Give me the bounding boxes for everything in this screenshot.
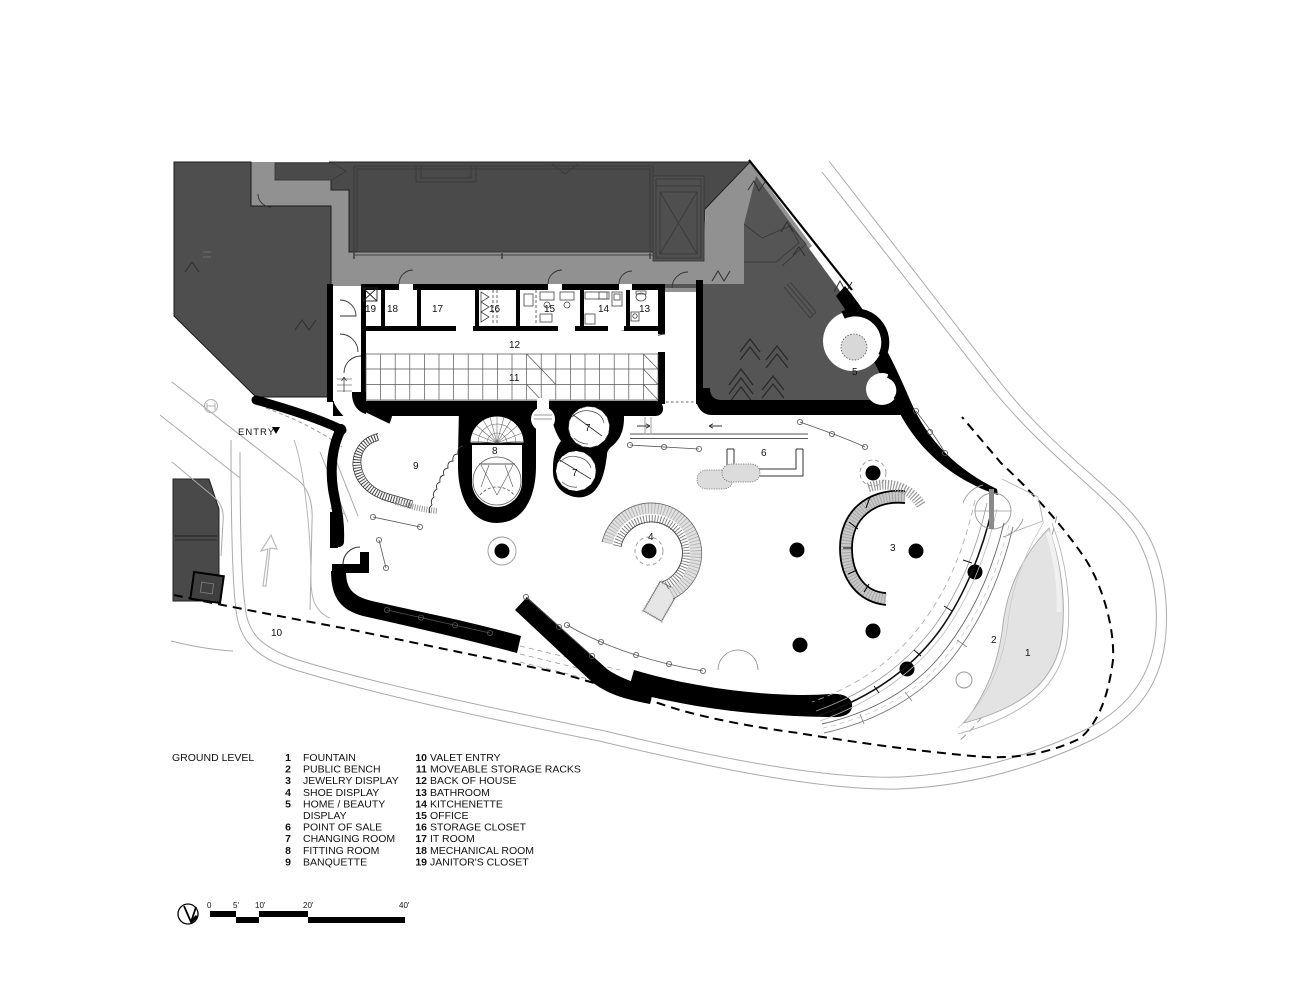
svg-text:OFFICE: OFFICE <box>430 810 469 822</box>
svg-text:4: 4 <box>648 532 654 543</box>
svg-text:13: 13 <box>415 787 427 799</box>
svg-text:19: 19 <box>415 856 427 868</box>
svg-text:17: 17 <box>415 833 427 845</box>
svg-text:VALET ENTRY: VALET ENTRY <box>430 752 501 764</box>
svg-text:19: 19 <box>365 304 377 315</box>
svg-text:8: 8 <box>492 446 498 457</box>
svg-text:12: 12 <box>415 775 427 787</box>
svg-text:JANITOR'S CLOSET: JANITOR'S CLOSET <box>430 856 529 868</box>
svg-text:15: 15 <box>544 304 556 315</box>
svg-text:FITTING ROOM: FITTING ROOM <box>303 845 379 857</box>
svg-text:17: 17 <box>432 304 444 315</box>
svg-text:FOUNTAIN: FOUNTAIN <box>303 752 356 764</box>
svg-text:10: 10 <box>415 752 427 764</box>
svg-text:5': 5' <box>233 901 239 910</box>
svg-text:2: 2 <box>285 764 291 776</box>
svg-text:13: 13 <box>639 304 651 315</box>
svg-text:KITCHENETTE: KITCHENETTE <box>430 798 503 810</box>
svg-text:SHOE DISPLAY: SHOE DISPLAY <box>303 787 379 799</box>
svg-text:10': 10' <box>255 901 266 910</box>
svg-text:5: 5 <box>285 798 291 810</box>
svg-text:20': 20' <box>303 901 314 910</box>
svg-text:15: 15 <box>415 810 427 822</box>
svg-text:16: 16 <box>489 304 501 315</box>
svg-text:9: 9 <box>285 856 291 868</box>
svg-text:10: 10 <box>271 628 283 639</box>
svg-text:CHANGING ROOM: CHANGING ROOM <box>303 833 395 845</box>
svg-text:POINT OF SALE: POINT OF SALE <box>303 822 382 834</box>
svg-text:18: 18 <box>415 845 427 857</box>
svg-text:9: 9 <box>413 461 419 472</box>
svg-text:16: 16 <box>415 822 427 834</box>
svg-text:BATHROOM: BATHROOM <box>430 787 490 799</box>
svg-text:40': 40' <box>399 901 410 910</box>
svg-text:14: 14 <box>415 798 427 810</box>
svg-text:4: 4 <box>285 787 291 799</box>
svg-text:JEWELRY DISPLAY: JEWELRY DISPLAY <box>303 775 399 787</box>
svg-text:MOVEABLE STORAGE RACKS: MOVEABLE STORAGE RACKS <box>430 764 581 776</box>
svg-text:7: 7 <box>285 833 291 845</box>
svg-text:1: 1 <box>1025 648 1031 659</box>
svg-text:11: 11 <box>509 373 520 384</box>
svg-text:6: 6 <box>285 822 291 834</box>
svg-text:1: 1 <box>285 752 291 764</box>
svg-text:DISPLAY: DISPLAY <box>303 810 347 822</box>
svg-text:PUBLIC BENCH: PUBLIC BENCH <box>303 764 381 776</box>
svg-text:14: 14 <box>598 304 610 315</box>
svg-text:5: 5 <box>852 367 858 378</box>
svg-text:GROUND LEVEL: GROUND LEVEL <box>172 752 254 764</box>
svg-text:18: 18 <box>387 304 399 315</box>
svg-text:IT ROOM: IT ROOM <box>430 833 475 845</box>
svg-text:11: 11 <box>416 764 427 776</box>
svg-text:STORAGE CLOSET: STORAGE CLOSET <box>430 822 527 834</box>
svg-text:3: 3 <box>285 775 291 787</box>
svg-text:MECHANICAL ROOM: MECHANICAL ROOM <box>430 845 534 857</box>
svg-text:8: 8 <box>285 845 291 857</box>
svg-text:7: 7 <box>585 423 591 434</box>
svg-text:HOME / BEAUTY: HOME / BEAUTY <box>303 798 385 810</box>
svg-text:2: 2 <box>991 635 997 646</box>
svg-text:12: 12 <box>509 340 521 351</box>
svg-text:BACK OF HOUSE: BACK OF HOUSE <box>430 775 516 787</box>
svg-text:3: 3 <box>890 543 896 554</box>
svg-text:6: 6 <box>761 448 767 459</box>
svg-text:0: 0 <box>207 901 212 910</box>
svg-text:7: 7 <box>572 468 578 479</box>
svg-text:BANQUETTE: BANQUETTE <box>303 856 367 868</box>
svg-text:ENTRY: ENTRY <box>238 427 275 438</box>
